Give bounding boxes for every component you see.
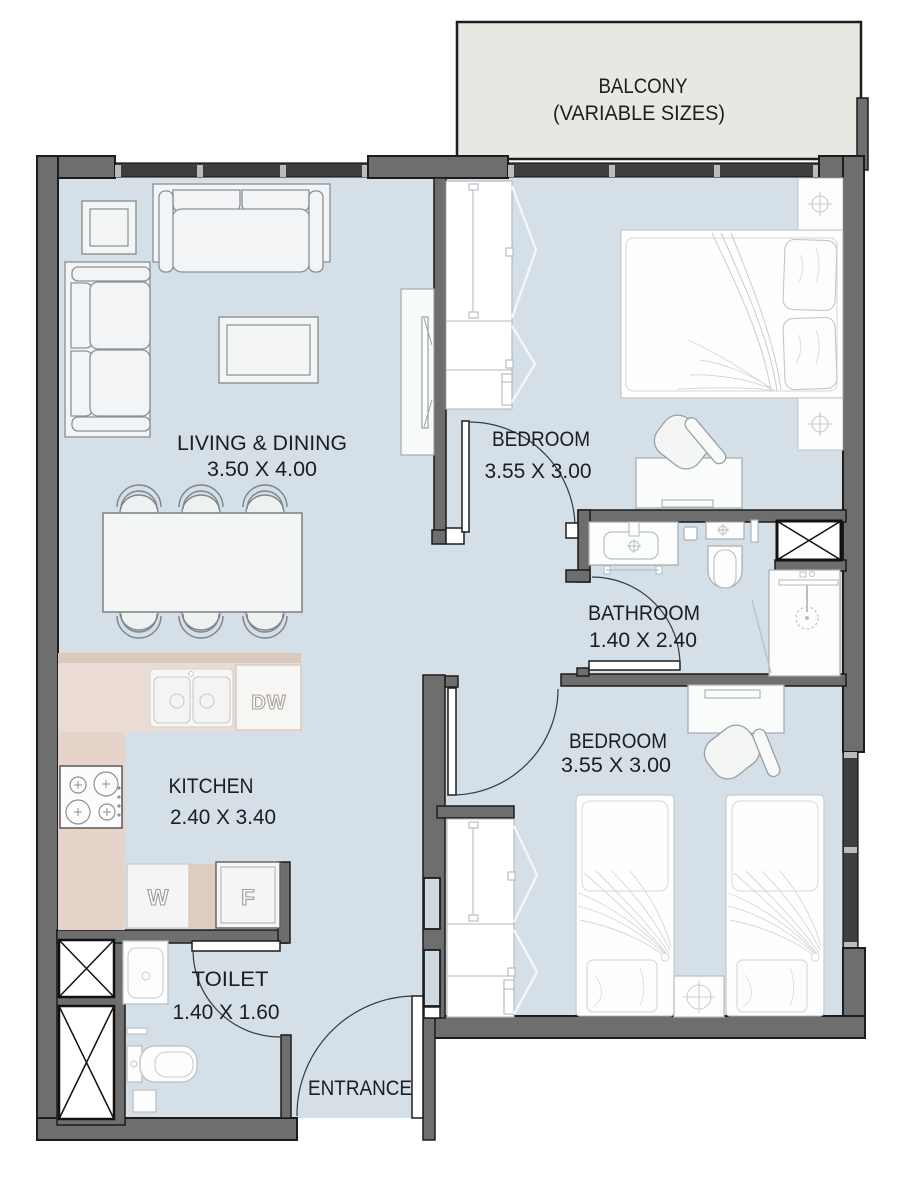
- svg-text:ENTRANCE: ENTRANCE: [308, 1077, 412, 1100]
- svg-text:BEDROOM: BEDROOM: [492, 428, 590, 451]
- svg-text:BATHROOM: BATHROOM: [588, 602, 700, 625]
- svg-text:F: F: [241, 885, 254, 910]
- svg-text:1.40 X 1.60: 1.40 X 1.60: [173, 1001, 280, 1024]
- svg-text:W: W: [148, 885, 169, 910]
- svg-text:3.50 X 4.00: 3.50 X 4.00: [207, 458, 317, 481]
- svg-text:3.55 X 3.00: 3.55 X 3.00: [485, 460, 592, 483]
- svg-text:3.55 X 3.00: 3.55 X 3.00: [561, 754, 671, 777]
- svg-text:(VARIABLE SIZES): (VARIABLE SIZES): [553, 102, 725, 125]
- svg-text:1.40 X 2.40: 1.40 X 2.40: [589, 629, 697, 652]
- svg-text:KITCHEN: KITCHEN: [169, 775, 254, 798]
- svg-text:BALCONY: BALCONY: [599, 75, 688, 98]
- svg-text:LIVING & DINING: LIVING & DINING: [177, 432, 347, 455]
- svg-text:2.40 X 3.40: 2.40 X 3.40: [170, 806, 276, 829]
- svg-text:DW: DW: [251, 692, 286, 714]
- svg-text:BEDROOM: BEDROOM: [569, 730, 667, 753]
- svg-text:TOILET: TOILET: [192, 968, 269, 991]
